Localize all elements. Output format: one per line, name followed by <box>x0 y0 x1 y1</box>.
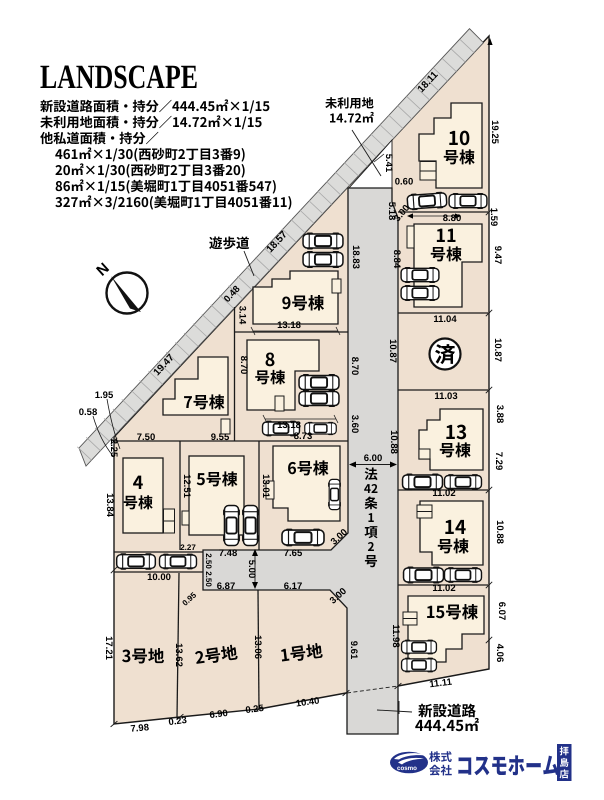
svg-text:8.80: 8.80 <box>443 213 462 224</box>
svg-text:13.06: 13.06 <box>252 635 263 659</box>
svg-text:7.48: 7.48 <box>219 548 238 559</box>
svg-text:19.25: 19.25 <box>489 120 500 144</box>
svg-text:cosmo: cosmo <box>397 765 417 772</box>
svg-text:6.17: 6.17 <box>284 581 303 592</box>
svg-text:3.14: 3.14 <box>237 306 248 325</box>
svg-text:13.84: 13.84 <box>104 493 115 517</box>
svg-text:6.87: 6.87 <box>217 581 236 592</box>
svg-text:3.60: 3.60 <box>349 415 360 434</box>
svg-text:11.03: 11.03 <box>434 391 457 402</box>
svg-text:2.27: 2.27 <box>180 543 196 552</box>
svg-text:LANDSCAPE: LANDSCAPE <box>40 59 198 96</box>
svg-text:0.60: 0.60 <box>395 177 414 188</box>
svg-text:10.88: 10.88 <box>388 430 399 454</box>
svg-text:0.25: 0.25 <box>245 703 265 716</box>
svg-text:11.02: 11.02 <box>432 488 455 499</box>
svg-text:7.50: 7.50 <box>137 432 156 443</box>
svg-text:0.58: 0.58 <box>79 407 98 418</box>
svg-text:7.29: 7.29 <box>493 452 504 471</box>
svg-text:7.98: 7.98 <box>130 722 149 735</box>
svg-text:8.84: 8.84 <box>391 250 402 269</box>
svg-text:3.88: 3.88 <box>494 405 505 424</box>
svg-text:5.00: 5.00 <box>246 560 257 579</box>
svg-text:11.98: 11.98 <box>390 624 401 647</box>
svg-text:8.70: 8.70 <box>238 356 249 375</box>
svg-text:2.50: 2.50 <box>204 571 213 587</box>
svg-text:4.06: 4.06 <box>494 644 505 663</box>
svg-text:10.88: 10.88 <box>494 520 505 544</box>
svg-text:17.21: 17.21 <box>103 636 114 660</box>
svg-text:12.51: 12.51 <box>181 474 192 498</box>
svg-text:2.50: 2.50 <box>204 553 213 569</box>
svg-text:1.59: 1.59 <box>488 208 499 227</box>
svg-text:5.41: 5.41 <box>383 154 394 173</box>
svg-text:6.90: 6.90 <box>209 708 229 721</box>
svg-text:10.87: 10.87 <box>387 339 398 363</box>
svg-text:18.83: 18.83 <box>350 245 361 269</box>
svg-text:9.61: 9.61 <box>348 641 359 660</box>
svg-text:11.02: 11.02 <box>432 583 455 594</box>
svg-text:8.73: 8.73 <box>294 431 313 442</box>
svg-text:11.04: 11.04 <box>433 314 457 325</box>
svg-text:0.23: 0.23 <box>168 715 188 728</box>
svg-text:13.18: 13.18 <box>277 420 301 431</box>
svg-text:9.47: 9.47 <box>492 246 503 265</box>
svg-text:13.62: 13.62 <box>173 643 184 667</box>
svg-text:8.70: 8.70 <box>349 357 360 376</box>
svg-text:10.87: 10.87 <box>492 338 503 362</box>
svg-text:7.65: 7.65 <box>284 548 303 559</box>
svg-text:1.95: 1.95 <box>95 390 114 401</box>
svg-text:6.07: 6.07 <box>496 602 507 621</box>
svg-text:10.00: 10.00 <box>147 572 171 583</box>
svg-text:2.25: 2.25 <box>108 439 119 458</box>
svg-text:9.55: 9.55 <box>211 432 230 443</box>
svg-text:13.01: 13.01 <box>260 474 271 498</box>
svg-text:13.18: 13.18 <box>277 320 301 331</box>
svg-text:6.00: 6.00 <box>364 453 383 464</box>
